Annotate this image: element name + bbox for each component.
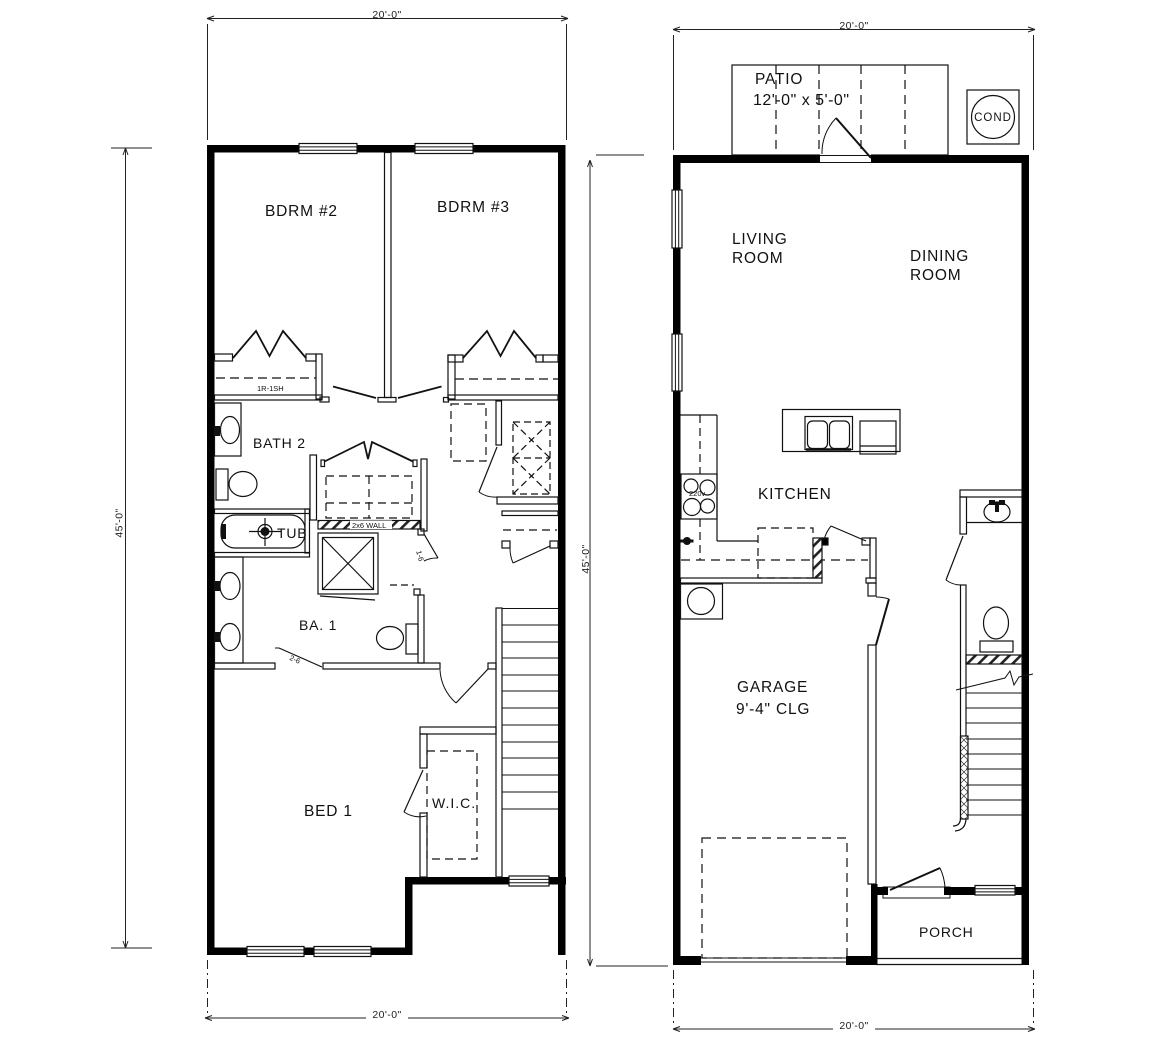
- svg-text:45'-0": 45'-0": [580, 544, 592, 573]
- svg-text:20'-0": 20'-0": [839, 1020, 868, 1032]
- svg-text:BA. 1: BA. 1: [299, 617, 337, 633]
- svg-text:2x6 WALL: 2x6 WALL: [352, 521, 386, 530]
- svg-text:LIVING: LIVING: [732, 231, 788, 248]
- svg-text:12'-0" x 5'-0": 12'-0" x 5'-0": [753, 92, 850, 109]
- svg-text:ROOM: ROOM: [910, 267, 961, 284]
- svg-text:45'-0": 45'-0": [114, 508, 126, 537]
- svg-text:W.I.C.: W.I.C.: [432, 795, 476, 811]
- svg-text:COND: COND: [974, 112, 1012, 124]
- svg-text:BDRM #3: BDRM #3: [437, 199, 510, 216]
- svg-text:ROOM: ROOM: [732, 250, 783, 267]
- svg-text:20'-0": 20'-0": [372, 1009, 401, 1021]
- svg-text:220v: 220v: [689, 489, 706, 498]
- svg-text:BATH 2: BATH 2: [253, 435, 306, 451]
- svg-text:9'-4" CLG: 9'-4" CLG: [736, 701, 810, 718]
- svg-text:1R-1SH: 1R-1SH: [257, 384, 284, 393]
- svg-text:PORCH: PORCH: [919, 924, 974, 940]
- svg-text:20'-0": 20'-0": [839, 20, 868, 32]
- svg-text:BED 1: BED 1: [304, 803, 353, 820]
- svg-text:GARAGE: GARAGE: [737, 679, 808, 696]
- svg-text:TUB: TUB: [277, 525, 307, 541]
- svg-text:KITCHEN: KITCHEN: [758, 486, 832, 503]
- svg-text:DINING: DINING: [910, 248, 969, 265]
- svg-text:PATIO: PATIO: [755, 71, 803, 88]
- svg-text:BDRM #2: BDRM #2: [265, 203, 338, 220]
- svg-text:20'-0": 20'-0": [372, 9, 401, 21]
